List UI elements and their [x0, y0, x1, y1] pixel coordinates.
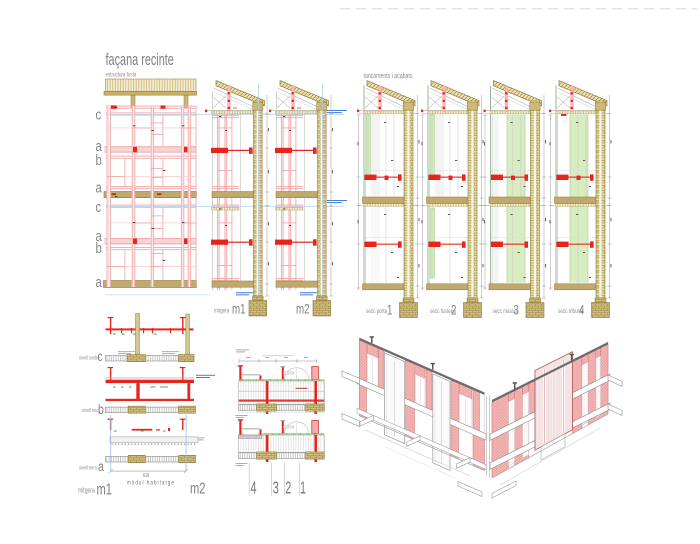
svg-text:mitgera: mitgera	[214, 308, 230, 315]
svg-text:4: 4	[251, 479, 257, 498]
svg-text:b: b	[96, 239, 102, 256]
svg-text:2: 2	[451, 303, 456, 318]
svg-text:610: 610	[143, 472, 150, 478]
svg-text:b: b	[98, 402, 104, 418]
svg-text:a: a	[98, 459, 104, 475]
svg-text:m2: m2	[190, 480, 206, 497]
svg-text:secc porta: secc porta	[366, 308, 388, 315]
svg-text:façana recinte: façana recinte	[106, 50, 175, 69]
svg-text:mitgera: mitgera	[78, 487, 95, 495]
svg-text:3: 3	[273, 479, 279, 498]
svg-text:m2: m2	[296, 302, 309, 317]
svg-text:nivell nou: nivell nou	[82, 407, 99, 413]
svg-text:c: c	[96, 106, 102, 123]
svg-text:b: b	[96, 151, 102, 168]
svg-text:nivell sostre: nivell sostre	[79, 355, 100, 361]
svg-text:a: a	[96, 179, 103, 196]
svg-text:mòdul habitatge: mòdul habitatge	[127, 480, 175, 487]
svg-text:nivell terra: nivell terra	[79, 465, 97, 471]
svg-text:3: 3	[514, 303, 520, 318]
svg-text:1: 1	[300, 479, 306, 498]
svg-text:4: 4	[579, 303, 585, 318]
svg-text:2: 2	[285, 479, 291, 498]
svg-text:a: a	[96, 273, 103, 290]
svg-text:c: c	[96, 198, 102, 215]
svg-text:m1: m1	[97, 481, 113, 498]
svg-text:estructura fusta: estructura fusta	[106, 72, 137, 79]
svg-text:c: c	[98, 349, 103, 365]
svg-text:m1: m1	[232, 302, 245, 317]
svg-text:1: 1	[387, 303, 392, 318]
svg-text:tancaments i acabats: tancaments i acabats	[364, 72, 413, 80]
